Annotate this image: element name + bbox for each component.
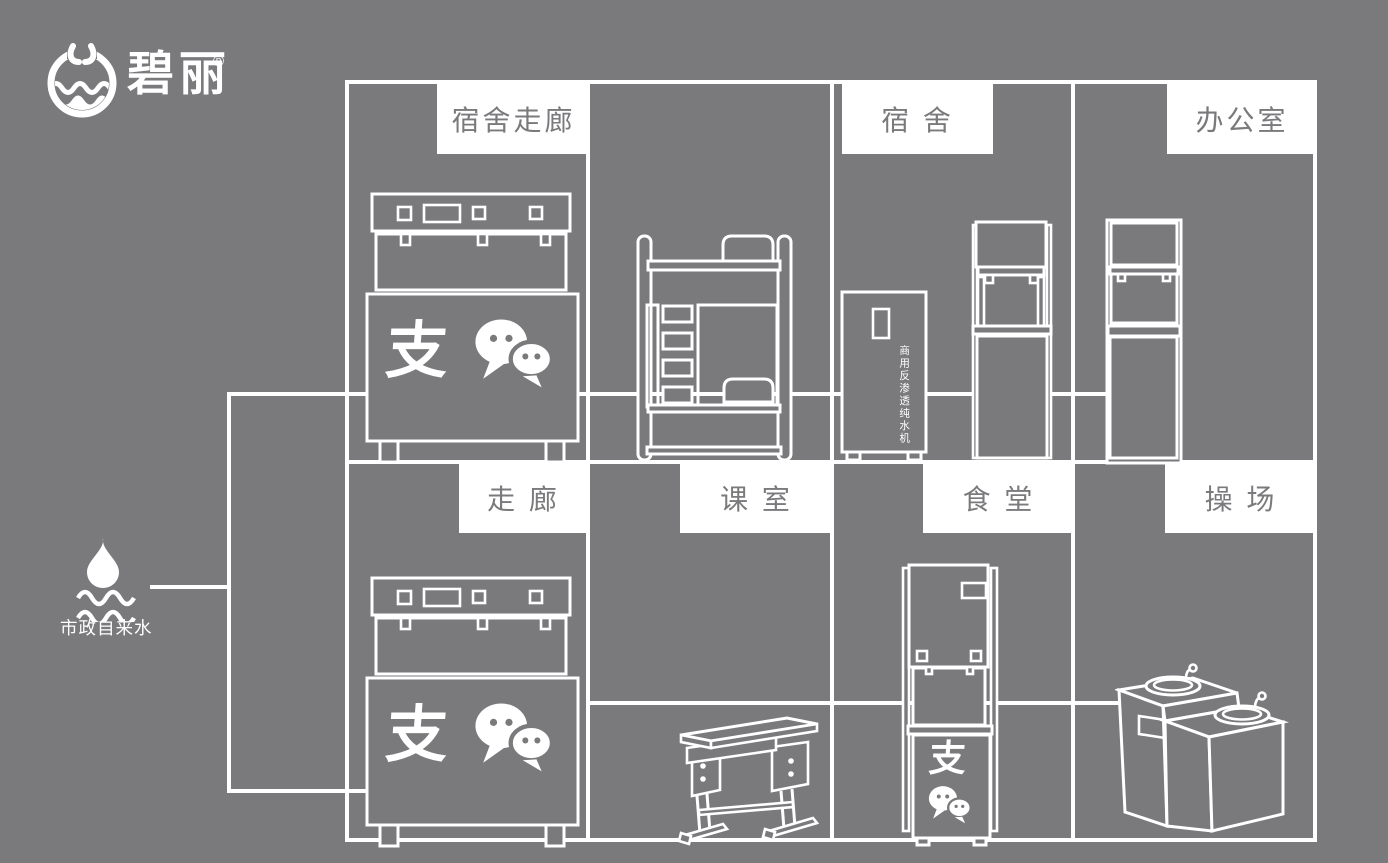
room-label-classroom: 课 室	[680, 463, 833, 533]
school-desk-drawing	[665, 705, 825, 847]
room-label-office: 办公室	[1167, 84, 1317, 154]
outdoor-drinking-fountain	[1115, 648, 1290, 845]
room-label-dorm-corridor: 宿舍走廊	[437, 84, 590, 154]
floor-dispenser-canteen: 支	[898, 558, 1002, 847]
purifier-label: 商用反渗透纯水机	[898, 345, 910, 445]
room-label-canteen: 食 堂	[923, 463, 1075, 533]
bunk-bed-drawing	[630, 228, 798, 464]
registered-trademark: ®	[213, 53, 224, 70]
wechat-pay-icon	[472, 700, 558, 774]
alipay-icon: 支	[384, 320, 450, 382]
diagram-canvas: 碧丽 ® 市政自来水 宿舍走廊 宿 舍 办公室 走 廊 课 室 食 堂 操 场 …	[0, 0, 1388, 863]
wall-water-dispenser-corridor: 支	[360, 572, 585, 849]
room-label-dorm: 宿 舍	[842, 84, 993, 154]
room-label-playground: 操 场	[1165, 463, 1317, 533]
water-cup-wave-icon	[44, 42, 120, 118]
brand-logo: 碧丽 ®	[44, 40, 244, 124]
wechat-pay-icon	[927, 784, 974, 825]
ro-purifier-unit: 商用反渗透纯水机	[838, 288, 930, 464]
municipal-water-label: 市政自来水	[60, 615, 153, 640]
water-drop-waves-icon	[76, 536, 140, 622]
room-label-corridor: 走 廊	[459, 463, 588, 533]
floor-dispenser-dorm	[968, 218, 1056, 464]
wechat-pay-icon	[472, 316, 558, 390]
alipay-icon: 支	[928, 740, 968, 777]
floor-dispenser-office	[1104, 216, 1184, 466]
wall-water-dispenser-dorm-corridor: 支	[360, 188, 585, 465]
alipay-icon: 支	[384, 704, 450, 766]
